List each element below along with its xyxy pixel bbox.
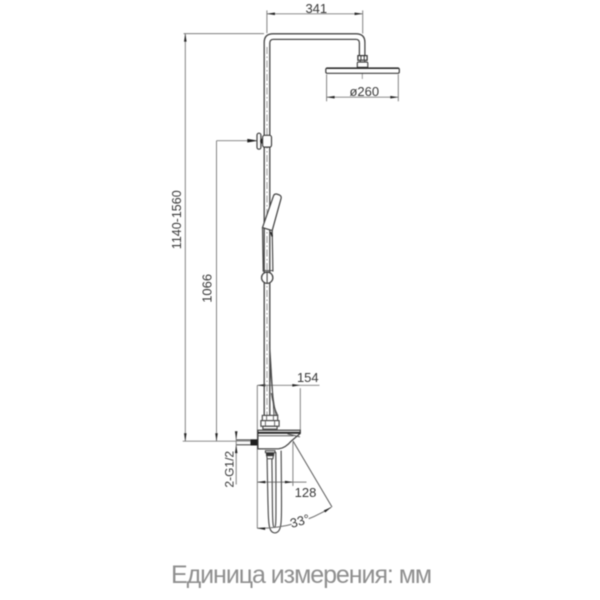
svg-text:Единица измерения: мм: Единица измерения: мм [171,561,431,589]
svg-text:341: 341 [305,1,327,16]
svg-text:1140-1560: 1140-1560 [170,190,184,249]
svg-text:128: 128 [295,485,317,500]
svg-text:2-G1/2: 2-G1/2 [222,451,236,488]
svg-text:ø260: ø260 [349,84,379,99]
svg-text:154: 154 [297,370,319,385]
svg-text:1066: 1066 [200,274,215,303]
